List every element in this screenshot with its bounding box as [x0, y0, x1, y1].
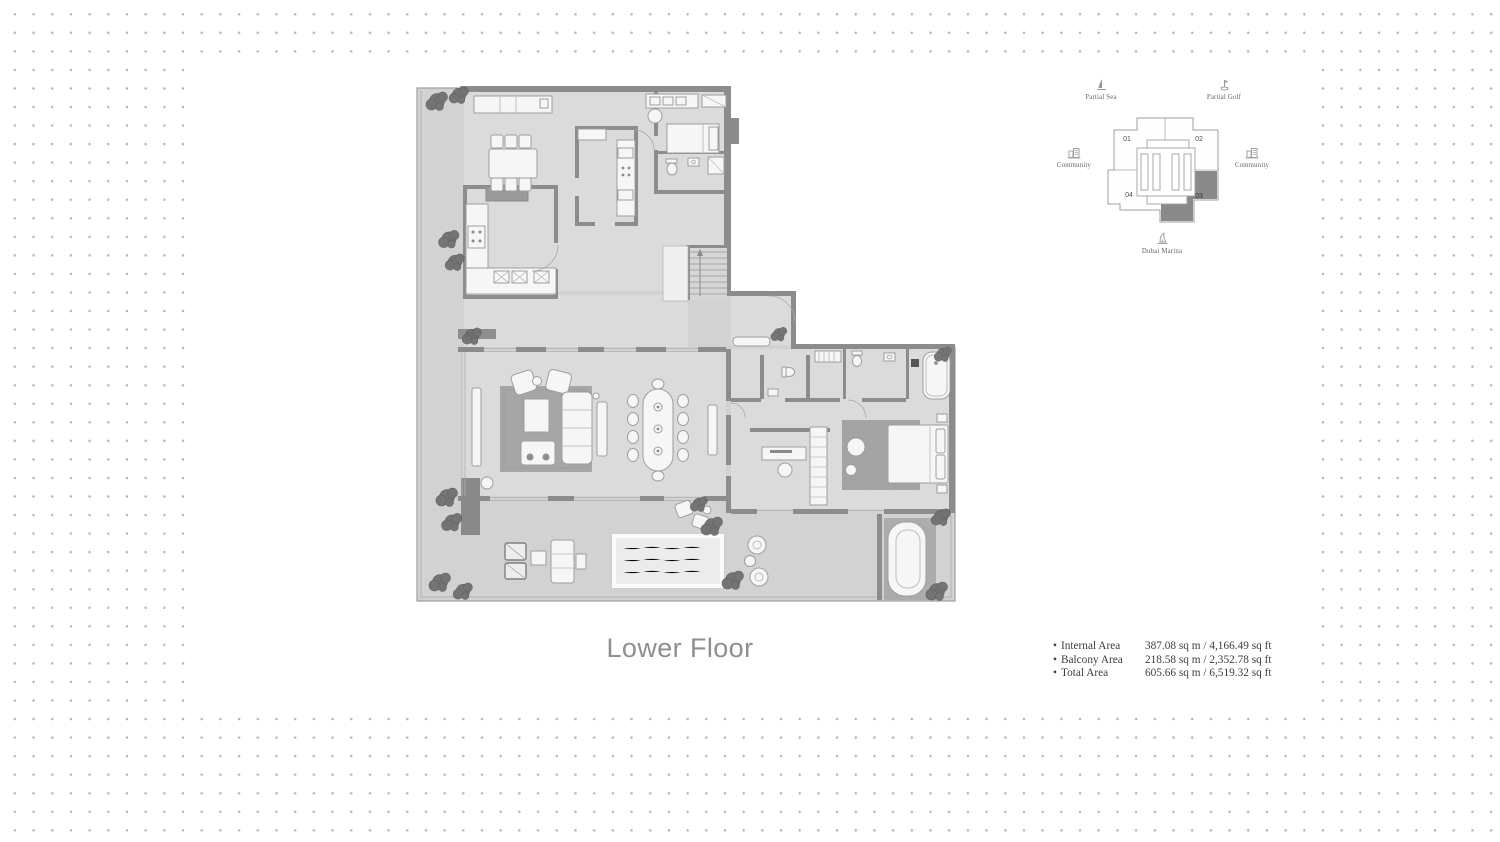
floor-title: Lower Floor [540, 633, 820, 664]
landmark-label: Partial Golf [1207, 94, 1241, 101]
landmark-dubai-marina: Dubai Marina [1132, 232, 1192, 255]
area-value: 387.08 sq m / 4,166.49 sq ft [1145, 640, 1271, 654]
area-value: 218.58 sq m / 2,352.78 sq ft [1145, 654, 1271, 668]
area-row-internal: •Internal Area 387.08 sq m / 4,166.49 sq… [1053, 640, 1271, 654]
landmark-label: Dubai Marina [1142, 248, 1182, 255]
landmark-partial-golf: Partial Golf [1196, 78, 1252, 101]
core [1137, 140, 1195, 204]
area-summary: •Internal Area 387.08 sq m / 4,166.49 sq… [1053, 640, 1271, 681]
buildings-icon [1067, 146, 1081, 159]
unit-label-02: 02 [1191, 136, 1207, 143]
unit-label-04: 04 [1121, 192, 1137, 199]
bullet: • [1053, 654, 1057, 668]
area-label: Total Area [1061, 667, 1108, 681]
staircase [663, 246, 727, 301]
bullet: • [1053, 667, 1057, 681]
landmark-partial-sea: Partial Sea [1073, 78, 1129, 101]
bullet: • [1053, 640, 1057, 654]
unit-label-03: 03 [1191, 193, 1207, 200]
landmark-label: Community [1235, 162, 1269, 169]
area-label: Balcony Area [1061, 654, 1123, 668]
area-value: 605.66 sq m / 6,519.32 sq ft [1145, 667, 1271, 681]
landmark-label: Partial Sea [1085, 94, 1116, 101]
page: 01 02 04 03 Partial Sea Partial Golf Com… [0, 0, 1500, 842]
marina-sail-icon [1155, 232, 1169, 245]
floor-plan-drawing [410, 80, 970, 610]
unit-label-01: 01 [1119, 136, 1135, 143]
area-label: Internal Area [1061, 640, 1120, 654]
landmark-community-west: Community [1046, 146, 1102, 169]
golf-flag-icon [1218, 78, 1231, 91]
key-plan-footprint [1104, 112, 1222, 232]
landmark-label: Community [1057, 162, 1091, 169]
sail-icon [1095, 78, 1108, 91]
buildings-icon [1245, 146, 1259, 159]
area-row-total: •Total Area 605.66 sq m / 6,519.32 sq ft [1053, 667, 1271, 681]
area-row-balcony: •Balcony Area 218.58 sq m / 2,352.78 sq … [1053, 654, 1271, 668]
landmark-community-east: Community [1224, 146, 1280, 169]
